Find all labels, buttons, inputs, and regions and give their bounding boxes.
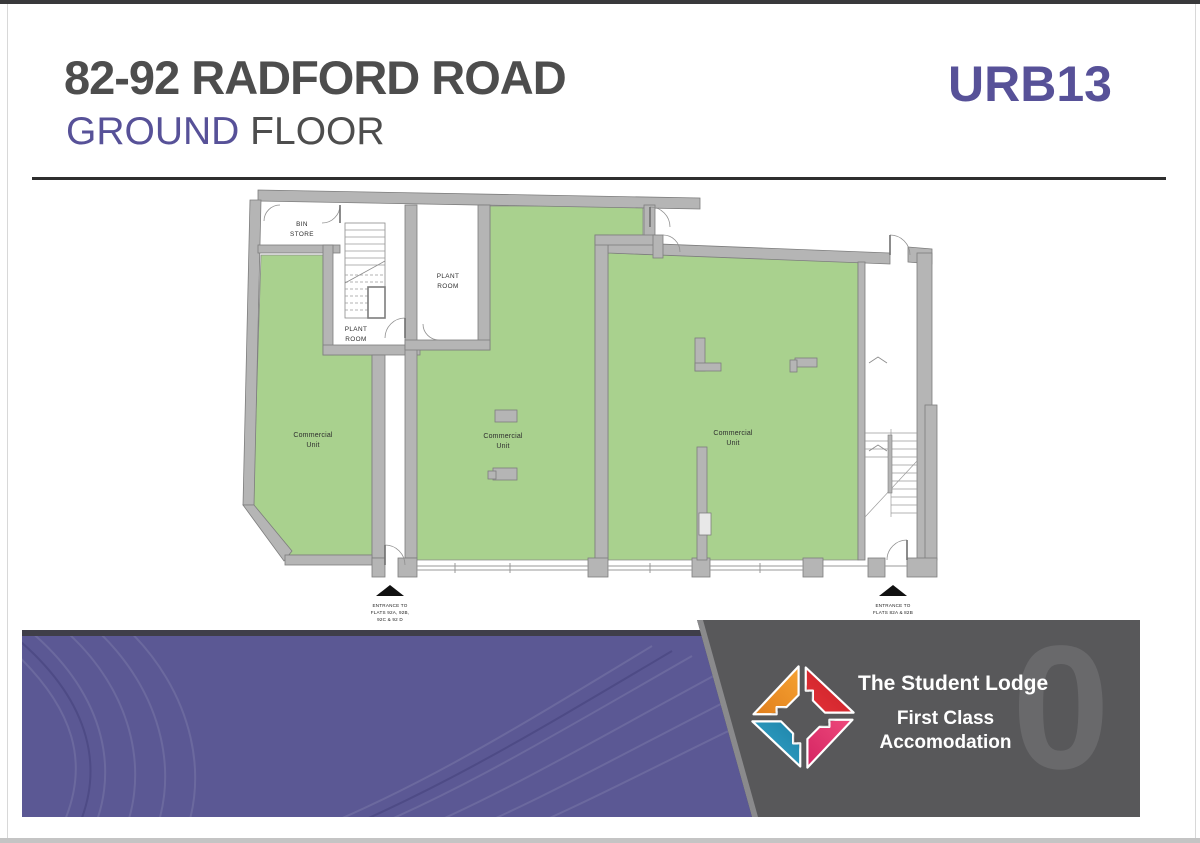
svg-text:FLATS 82A & 82B: FLATS 82A & 82B <box>873 610 913 615</box>
page-bottom-strip <box>0 838 1200 843</box>
commercial-unit-right <box>608 253 858 560</box>
svg-text:Unit: Unit <box>306 442 319 449</box>
floor-plan: BIN STORE PLANT ROOM PLANT ROOM Commerci… <box>240 183 940 623</box>
stairwell-left <box>345 223 385 318</box>
commercial-unit-right-label: Commercial <box>713 430 753 437</box>
page-left-edge <box>7 4 8 838</box>
entrance-left: ENTRANCE TO FLATS 92A, 92B, 92C & 92 D <box>371 585 409 622</box>
svg-text:STORE: STORE <box>290 231 314 238</box>
wave-band <box>22 630 752 817</box>
svg-text:92C & 92 D: 92C & 92 D <box>377 617 403 622</box>
page-top-strip <box>0 0 1200 4</box>
brand-text: The Student Lodge First Class Accomodati… <box>858 672 1033 755</box>
student-lodge-logo-icon <box>748 658 858 776</box>
entrance-arrow-icon <box>376 585 404 596</box>
svg-text:Unit: Unit <box>496 443 509 450</box>
svg-text:FLATS 92A, 92B,: FLATS 92A, 92B, <box>371 610 409 615</box>
reference-code: URB13 <box>948 55 1112 113</box>
svg-text:ENTRANCE TO: ENTRANCE TO <box>373 603 408 608</box>
commercial-unit-left-label: Commercial <box>293 432 333 439</box>
wave-pattern <box>22 636 752 817</box>
page-right-edge <box>1195 4 1196 838</box>
plant-room-large-label: PLANT <box>437 273 460 280</box>
svg-text:ROOM: ROOM <box>437 283 458 290</box>
plant-room-small-label: PLANT <box>345 326 368 333</box>
wall-door-detail <box>699 513 711 535</box>
svg-text:ROOM: ROOM <box>345 336 366 343</box>
stairwell-right <box>865 357 917 517</box>
shopfront-glazing <box>417 563 907 573</box>
subtitle-floor-word: FLOOR <box>239 110 384 153</box>
brand-tagline: First Class Accomodation <box>858 707 1033 755</box>
entrance-right: ENTRANCE TO FLATS 82A & 82B <box>873 585 913 615</box>
brand-name: The Student Lodge <box>858 672 1033 696</box>
page-title: 82-92 RADFORD ROAD <box>64 50 566 105</box>
svg-text:Unit: Unit <box>726 440 739 447</box>
entrance-arrow-icon <box>879 585 907 596</box>
header-divider <box>32 177 1166 180</box>
footer-panel: 0 The S <box>690 620 1140 817</box>
page-subtitle: GROUND FLOOR <box>66 110 385 154</box>
svg-text:ENTRANCE TO: ENTRANCE TO <box>876 603 911 608</box>
subtitle-floor-name: GROUND <box>66 110 239 153</box>
commercial-unit-middle-label: Commercial <box>483 433 523 440</box>
bin-store-label: BIN <box>296 221 308 228</box>
